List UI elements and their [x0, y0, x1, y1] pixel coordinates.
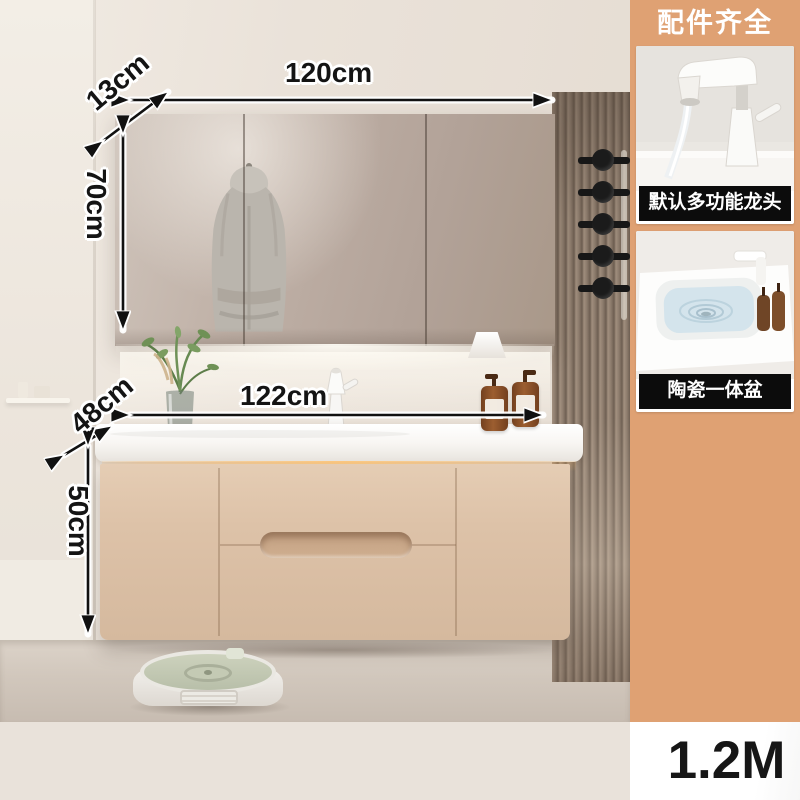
accessory-label-text: 陶瓷一体盆: [639, 379, 791, 404]
bathrobe-reflection: [195, 162, 303, 340]
dim-cabinet-height: 50cm: [62, 485, 94, 557]
drawer-handle: [260, 532, 412, 558]
cabinet-door-seam: [455, 468, 457, 636]
soap-bottle: [512, 382, 539, 427]
shelf-bottle: [18, 382, 28, 398]
towel-rack-knob: [592, 213, 614, 235]
bathroom-scene: 120cm 13cm 70cm 122cm 48cm 50cm: [0, 0, 630, 722]
accessories-sidebar: 配件齐全 默认多功能龙头: [630, 0, 800, 800]
sidebar-header: 配件齐全: [630, 2, 800, 44]
wall-shelf: [6, 398, 70, 403]
towel-rack-knob: [592, 181, 614, 203]
robot-vent: [180, 690, 238, 705]
mirror-door-seam: [425, 114, 427, 346]
multifunction-faucet-photo: [636, 46, 794, 191]
towel-rack-knob: [592, 149, 614, 171]
dim-counter-width: 122cm: [240, 380, 327, 412]
basin-hint: [110, 430, 410, 438]
soap-bottle: [481, 386, 508, 431]
plant-vase: [138, 320, 222, 436]
vanity-cabinet: [100, 464, 570, 640]
accessory-card-basin: 陶瓷一体盆 冷热进水管: [636, 231, 794, 412]
mirror-door-seam: [243, 114, 245, 346]
soap-bottle-label: [485, 399, 504, 419]
robot-vacuum: [128, 646, 292, 720]
bottom-banner: 1.2M 主柜+全镜普通镜柜+陶瓷一体盆 (注*手工测量存在±2cm误差属于正常…: [630, 722, 800, 800]
accessory-label: 默认多功能龙头: [639, 186, 791, 221]
soap-pump-spout: [523, 370, 536, 375]
robot-sensor: [226, 648, 244, 659]
accessory-label: 陶瓷一体盆: [639, 374, 791, 409]
product-image: 120cm 13cm 70cm 122cm 48cm 50cm 配件齐全: [0, 0, 800, 800]
accessory-label-text: 默认多功能龙头: [639, 191, 791, 216]
mirror-cabinet: [115, 114, 555, 346]
soap-bottle-label: [516, 395, 535, 415]
accessory-card-faucet: 默认多功能龙头: [636, 46, 794, 224]
robot-button: [204, 670, 212, 675]
ceramic-basin-photo: [636, 231, 794, 379]
size-label: 1.2M: [644, 730, 800, 791]
towel-rack-rail: [621, 150, 627, 320]
dim-mirror-height: 70cm: [80, 168, 112, 240]
dim-mirror-width: 120cm: [285, 57, 372, 89]
towel-rack-knob: [592, 277, 614, 299]
towel-rack-knob: [592, 245, 614, 267]
shelf-tray: [34, 386, 50, 398]
soap-pump-spout: [485, 374, 498, 379]
cabinet-door-seam: [218, 468, 220, 636]
